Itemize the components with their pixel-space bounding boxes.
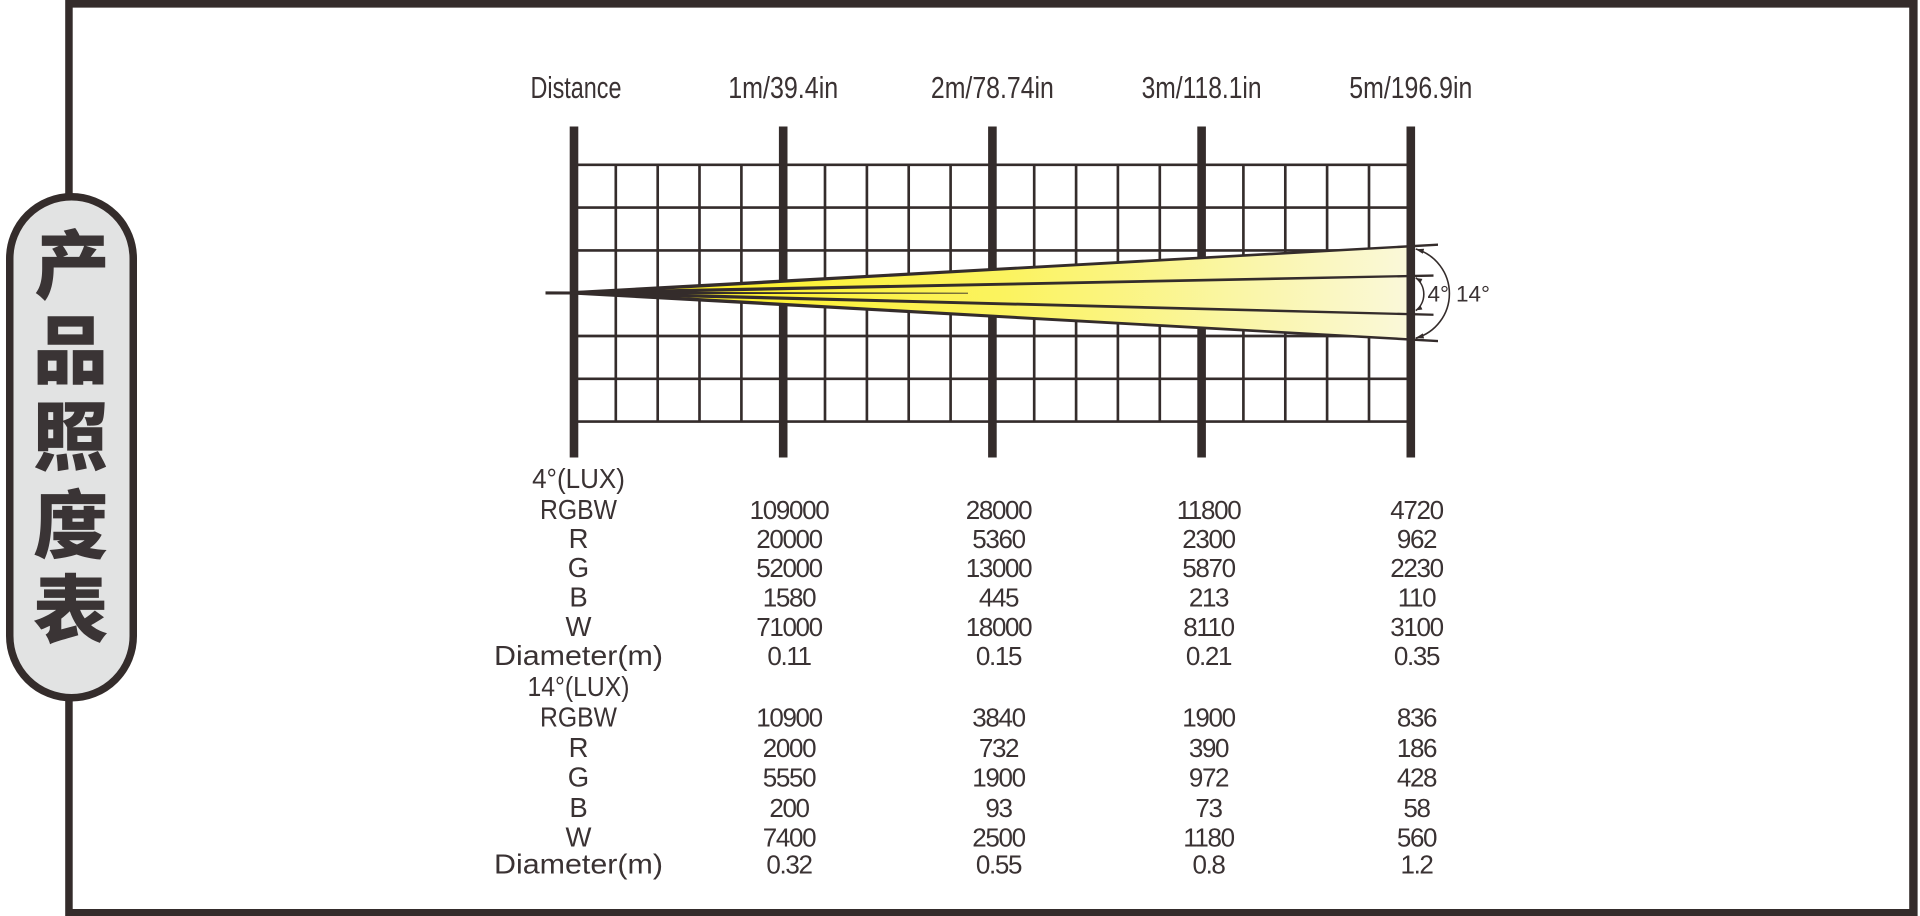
svg-text:1180: 1180 (1183, 823, 1234, 853)
svg-text:RGBW: RGBW (540, 702, 617, 733)
svg-text:20000: 20000 (756, 524, 822, 554)
svg-text:1900: 1900 (972, 763, 1025, 793)
svg-text:2300: 2300 (1182, 524, 1235, 554)
svg-text:390: 390 (1189, 733, 1229, 763)
svg-text:14°(LUX): 14°(LUX) (528, 671, 630, 702)
svg-text:445: 445 (979, 582, 1019, 612)
svg-text:110: 110 (1398, 582, 1436, 612)
svg-text:93: 93 (985, 793, 1012, 823)
svg-text:11800: 11800 (1177, 495, 1242, 525)
svg-text:13000: 13000 (966, 553, 1032, 583)
svg-text:52000: 52000 (756, 553, 822, 583)
svg-text:2500: 2500 (972, 823, 1025, 853)
svg-text:3100: 3100 (1390, 612, 1443, 642)
svg-text:Distance: Distance (531, 70, 622, 105)
svg-text:2230: 2230 (1390, 553, 1443, 583)
svg-text:213: 213 (1189, 582, 1229, 612)
svg-text:560: 560 (1397, 823, 1437, 853)
svg-text:R: R (569, 732, 589, 763)
svg-text:5m/196.9in: 5m/196.9in (1349, 70, 1472, 105)
svg-text:Diameter(m): Diameter(m) (494, 640, 663, 671)
svg-text:0.55: 0.55 (976, 850, 1022, 880)
svg-text:5550: 5550 (763, 763, 816, 793)
svg-text:1580: 1580 (763, 582, 816, 612)
svg-text:73: 73 (1195, 793, 1222, 823)
svg-text:G: G (568, 762, 589, 793)
svg-text:0.15: 0.15 (976, 641, 1022, 671)
svg-text:W: W (566, 611, 592, 642)
svg-text:3840: 3840 (972, 703, 1025, 733)
svg-text:28000: 28000 (966, 495, 1032, 525)
svg-text:0.32: 0.32 (766, 850, 812, 880)
svg-text:200: 200 (769, 793, 809, 823)
svg-text:B: B (569, 581, 587, 612)
svg-text:0.11: 0.11 (767, 641, 811, 671)
svg-text:14°: 14° (1456, 282, 1490, 307)
svg-text:0.35: 0.35 (1394, 641, 1440, 671)
svg-text:1900: 1900 (1182, 703, 1235, 733)
svg-text:4°(LUX): 4°(LUX) (532, 463, 625, 494)
svg-text:R: R (569, 523, 589, 554)
svg-text:0.21: 0.21 (1186, 641, 1232, 671)
svg-text:109000: 109000 (750, 495, 830, 525)
svg-text:8110: 8110 (1183, 612, 1234, 642)
svg-text:732: 732 (979, 733, 1019, 763)
svg-text:RGBW: RGBW (540, 494, 617, 525)
svg-text:4720: 4720 (1390, 495, 1443, 525)
svg-text:0.8: 0.8 (1192, 850, 1225, 880)
svg-text:2000: 2000 (763, 733, 816, 763)
svg-text:18000: 18000 (966, 612, 1032, 642)
svg-text:836: 836 (1397, 703, 1437, 733)
svg-text:972: 972 (1189, 763, 1229, 793)
svg-text:428: 428 (1397, 763, 1437, 793)
svg-text:5360: 5360 (972, 524, 1025, 554)
svg-text:7400: 7400 (763, 823, 816, 853)
svg-text:58: 58 (1403, 793, 1430, 823)
svg-text:71000: 71000 (756, 612, 822, 642)
svg-text:1m/39.4in: 1m/39.4in (728, 70, 838, 105)
svg-text:G: G (568, 552, 589, 583)
svg-text:Diameter(m): Diameter(m) (494, 849, 663, 880)
svg-text:2m/78.74in: 2m/78.74in (931, 70, 1054, 105)
svg-text:3m/118.1in: 3m/118.1in (1142, 70, 1262, 105)
svg-text:4°: 4° (1428, 282, 1450, 307)
svg-text:186: 186 (1397, 733, 1437, 763)
svg-text:5870: 5870 (1182, 553, 1235, 583)
svg-text:10900: 10900 (756, 703, 822, 733)
svg-text:B: B (569, 792, 587, 823)
svg-text:962: 962 (1397, 524, 1437, 554)
svg-text:1.2: 1.2 (1400, 850, 1433, 880)
